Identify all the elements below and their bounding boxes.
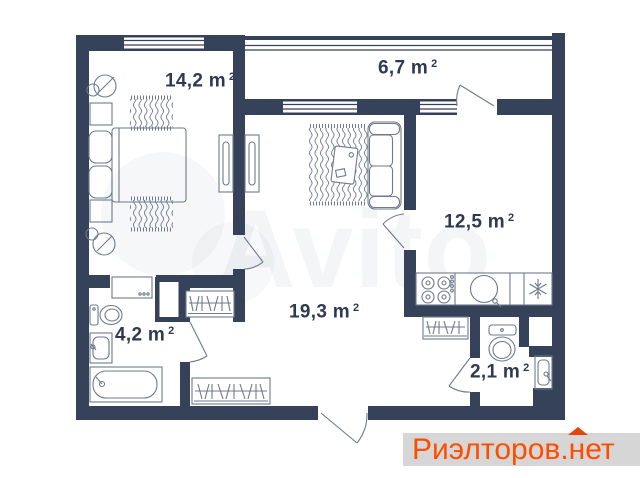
roof-icon bbox=[568, 427, 588, 435]
balcony-glazing bbox=[245, 46, 552, 51]
wc-door bbox=[449, 358, 470, 392]
floor-plan-drawing bbox=[0, 0, 640, 478]
wardrobe-icon bbox=[423, 317, 468, 339]
living-balcony-window bbox=[283, 105, 357, 110]
dressing-mirror-icon bbox=[87, 75, 116, 97]
washing-machine-icon bbox=[112, 277, 152, 298]
sliding-wardrobe-door-icon bbox=[219, 135, 233, 192]
floor-plan-image: Avito bbox=[0, 0, 640, 478]
kitchen-balcony-window bbox=[420, 105, 457, 110]
bathroom-door bbox=[190, 322, 207, 362]
bedroom-rug-icon bbox=[130, 199, 173, 230]
nightstand-icon bbox=[90, 103, 112, 125]
wc-toilet-icon bbox=[489, 325, 516, 361]
brand-prefix: Риэлторов. bbox=[412, 433, 569, 466]
duct-inner bbox=[160, 282, 179, 317]
bathtub-icon bbox=[90, 367, 162, 402]
sliding-wardrobe-door-icon bbox=[245, 135, 259, 192]
bedroom-window bbox=[124, 41, 204, 46]
kitchen-door bbox=[383, 214, 404, 248]
balcony-area-label: 6,7 m2 bbox=[378, 57, 438, 79]
sofa-icon bbox=[368, 122, 401, 209]
bedroom-area-label: 14,2 m2 bbox=[165, 70, 235, 92]
bath-sink-icon bbox=[90, 333, 112, 363]
brand-suffix: нет bbox=[569, 433, 615, 466]
kitchen-counter bbox=[416, 273, 552, 307]
bedroom-rug-icon bbox=[130, 98, 173, 129]
entrance-door bbox=[321, 413, 367, 443]
bathroom-area-label: 4,2 m2 bbox=[115, 324, 175, 346]
balcony-door bbox=[457, 85, 494, 106]
wc-area-label: 2,1 m2 bbox=[470, 361, 530, 383]
wardrobe-icon bbox=[192, 378, 270, 404]
wc-sink-icon bbox=[535, 356, 552, 389]
wardrobe-icon bbox=[186, 291, 234, 317]
coffee-table-icon bbox=[331, 146, 358, 185]
toilet-icon bbox=[90, 305, 122, 325]
living-area-label: 19,3 m2 bbox=[289, 301, 359, 323]
kitchen-area-label: 12,5 m2 bbox=[444, 211, 514, 233]
brand-plate: Риэлторов.нет bbox=[403, 433, 640, 466]
